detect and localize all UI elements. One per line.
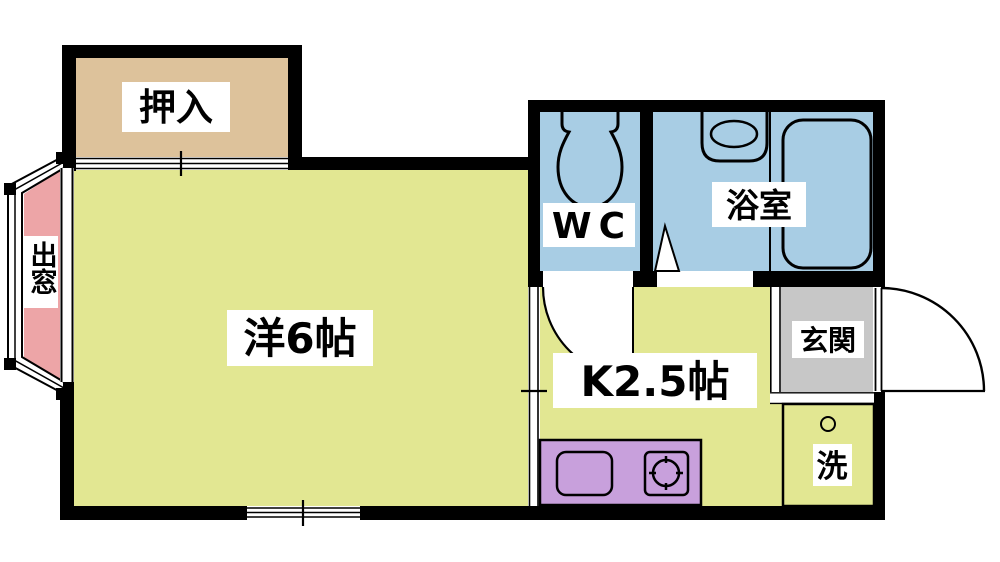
wall-closet-top xyxy=(62,45,302,58)
kitchen-label: K2.5帖 xyxy=(581,357,730,406)
wall-wet-top xyxy=(528,100,885,112)
wall-closet-right xyxy=(288,45,302,170)
bath-label: 浴室 xyxy=(726,186,792,225)
entrance-door-swing-icon xyxy=(873,287,985,392)
wall-wc-bath-divider xyxy=(640,100,653,271)
closet-label: 押入 xyxy=(139,86,213,129)
entrance-label: 玄関 xyxy=(800,324,856,357)
wc-area xyxy=(540,112,645,272)
wall-top-middle xyxy=(288,157,540,170)
floor-plan-page: 押入 出窓 洋6帖 WC 浴室 K2.5帖 玄関 洗 xyxy=(0,0,1000,562)
wall-bottom xyxy=(60,506,885,520)
floor-plan: 押入 出窓 洋6帖 WC 浴室 K2.5帖 玄関 洗 xyxy=(0,0,1000,562)
main-room-label: 洋6帖 xyxy=(243,314,356,363)
wall-right-upper xyxy=(873,100,885,287)
wall-closet-left xyxy=(62,45,76,170)
wall-wc-left xyxy=(528,100,540,287)
wc-label: WC xyxy=(552,206,632,247)
bay-window-label: 出窓 xyxy=(26,241,58,295)
laundry-label: 洗 xyxy=(817,449,848,485)
